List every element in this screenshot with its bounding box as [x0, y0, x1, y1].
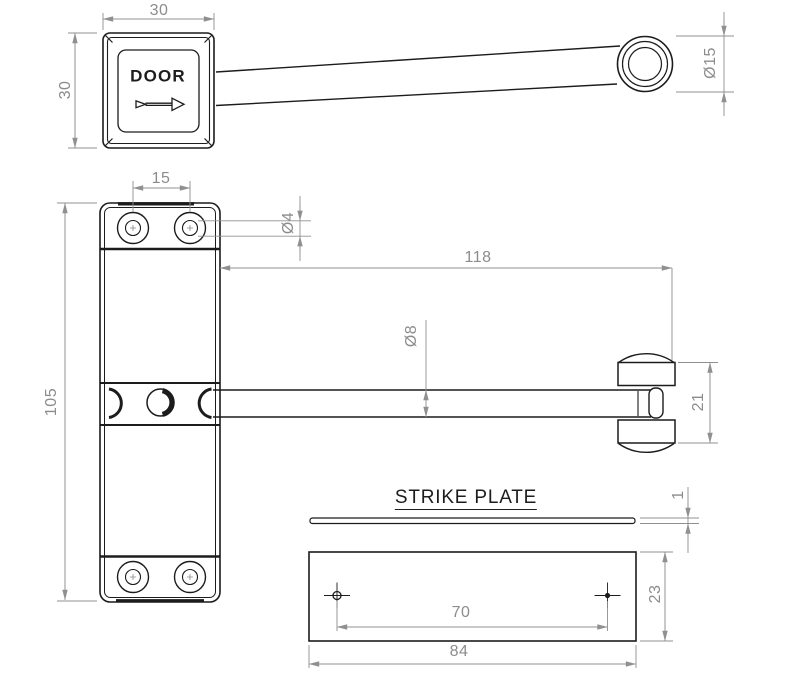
knuckle-outer-ring [618, 37, 673, 92]
arm-rod [213, 390, 651, 417]
dim-knuckle-diameter: Ø15 [703, 47, 719, 79]
dim-strike-width: 84 [450, 644, 469, 660]
dim-rod-diameter: Ø8 [404, 325, 420, 347]
strike-plate-title: STRIKE PLATE [395, 488, 537, 510]
technical-drawing: 30 30 Ø15 DOOR 15 Ø4 118 Ø8 105 21 STRIK… [0, 0, 800, 676]
dim-strike-height: 23 [648, 585, 664, 604]
dim-cap-height: 30 [58, 81, 74, 100]
dim-bracket-height: 21 [691, 393, 707, 412]
strike-plate-side-view [310, 518, 635, 524]
drawing-lineart [0, 0, 800, 676]
dim-strike-thickness: 1 [671, 490, 687, 499]
end-bracket [618, 354, 675, 453]
top-view-lineart [103, 33, 673, 148]
strike-plate-lineart [309, 518, 636, 641]
front-view-lineart [100, 203, 675, 602]
dim-plate-length: 105 [44, 388, 60, 416]
dim-strike-hole-spacing: 70 [452, 605, 471, 621]
arm-bottom-edge [216, 84, 617, 106]
dim-hole-spacing: 15 [152, 171, 171, 187]
dim-hole-diameter: Ø4 [281, 212, 297, 234]
dim-cap-width: 30 [150, 3, 169, 19]
strike-plate-face-view [309, 552, 636, 641]
door-cap-label: DOOR [130, 68, 186, 85]
arm-top-edge [216, 46, 620, 72]
dim-arm-length: 118 [464, 250, 491, 266]
